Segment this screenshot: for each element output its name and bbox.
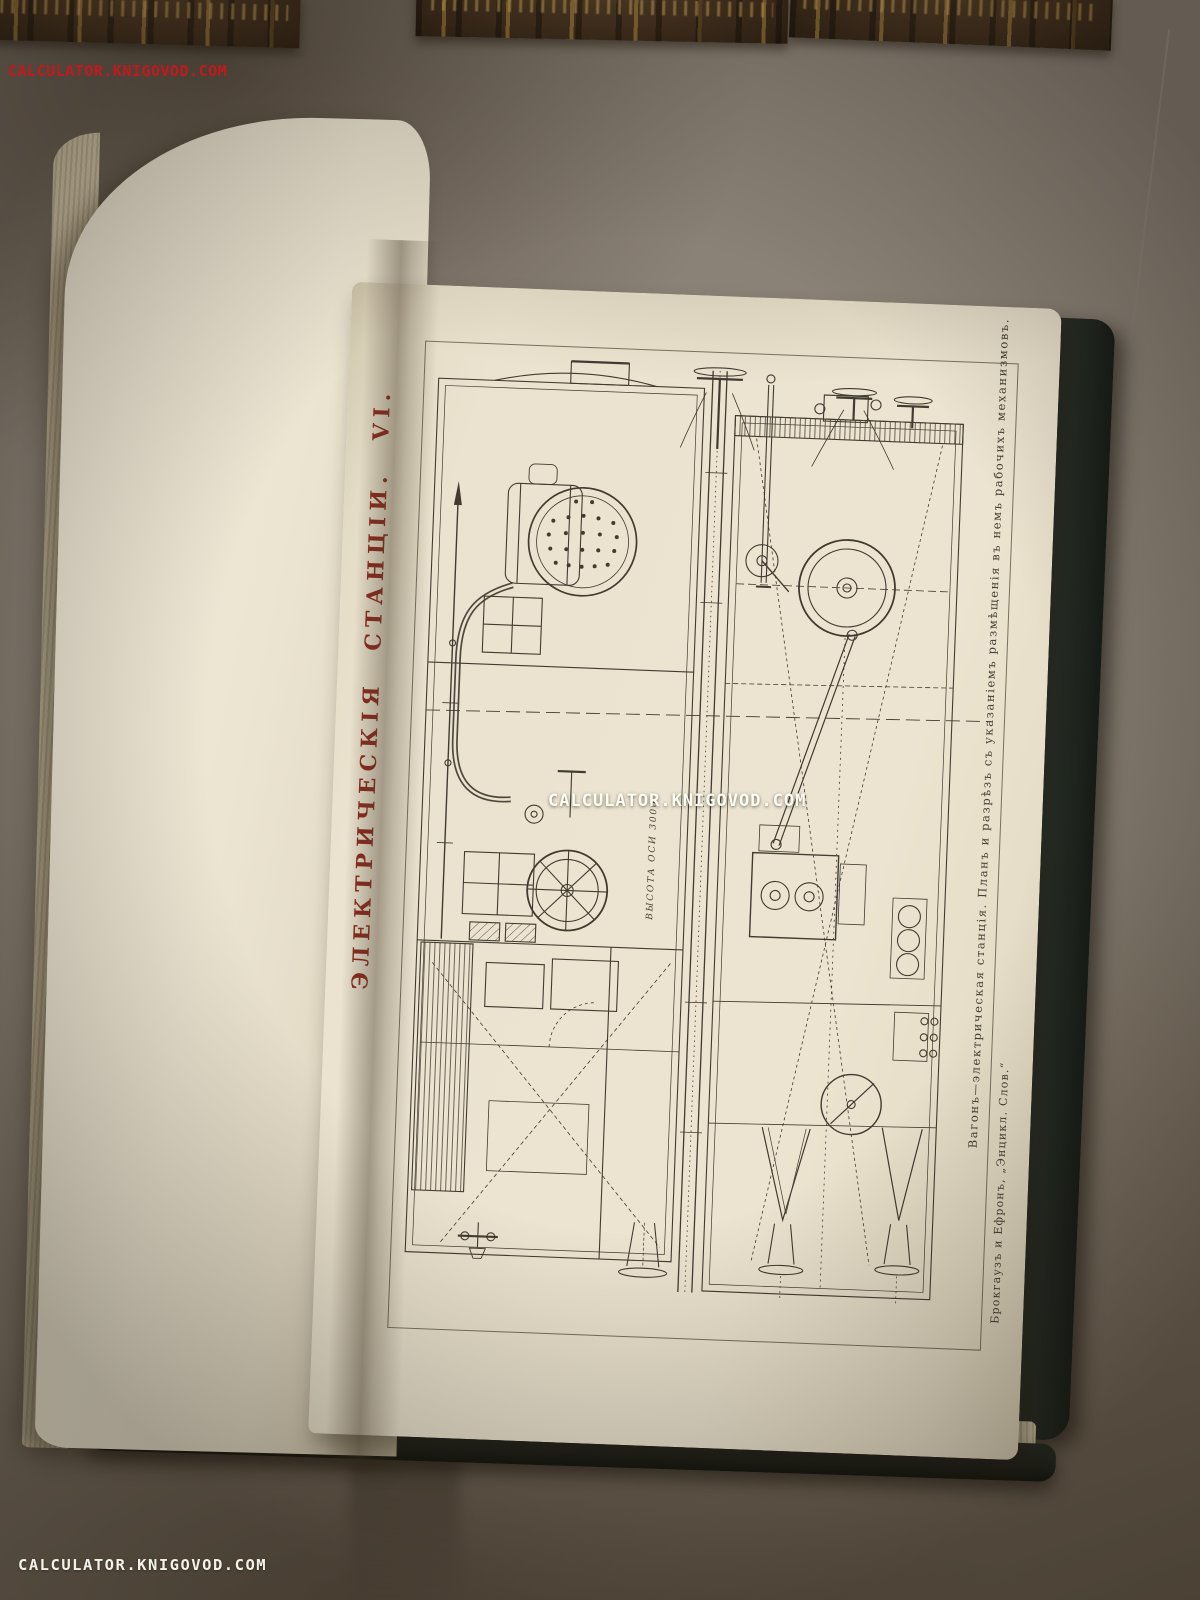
- book-spine-right: [789, 0, 1113, 51]
- book-cast-shadow: [350, 1455, 460, 1600]
- boiler-tube-dots: [546, 498, 621, 570]
- book-spine-left: [0, 0, 301, 48]
- watermark-bottom-left: CALCULATOR.KNIGOVOD.COM: [18, 1556, 267, 1574]
- plate-caption-source: Брокгаузъ и Ефронъ, „Энцикл. Слов.“: [987, 1064, 1012, 1324]
- watermark-center: CALCULATOR.KNIGOVOD.COM: [548, 791, 806, 811]
- spine-gilt-ornament: [431, 0, 773, 18]
- photo-of-open-book: ЭЛЕКТРИЧЕСКІЯ СТАНЦІИ. VI. Вагонъ—электр…: [0, 0, 1200, 1600]
- plate-engraving: [388, 342, 1015, 1348]
- spine-gilt-ornament: [803, 0, 1100, 21]
- spine-gilt-ornament: [1, 0, 288, 21]
- book-spine-middle: [416, 0, 789, 44]
- watermark-top-left: CALCULATOR.KNIGOVOD.COM: [8, 62, 227, 80]
- table-seam: [1128, 29, 1170, 357]
